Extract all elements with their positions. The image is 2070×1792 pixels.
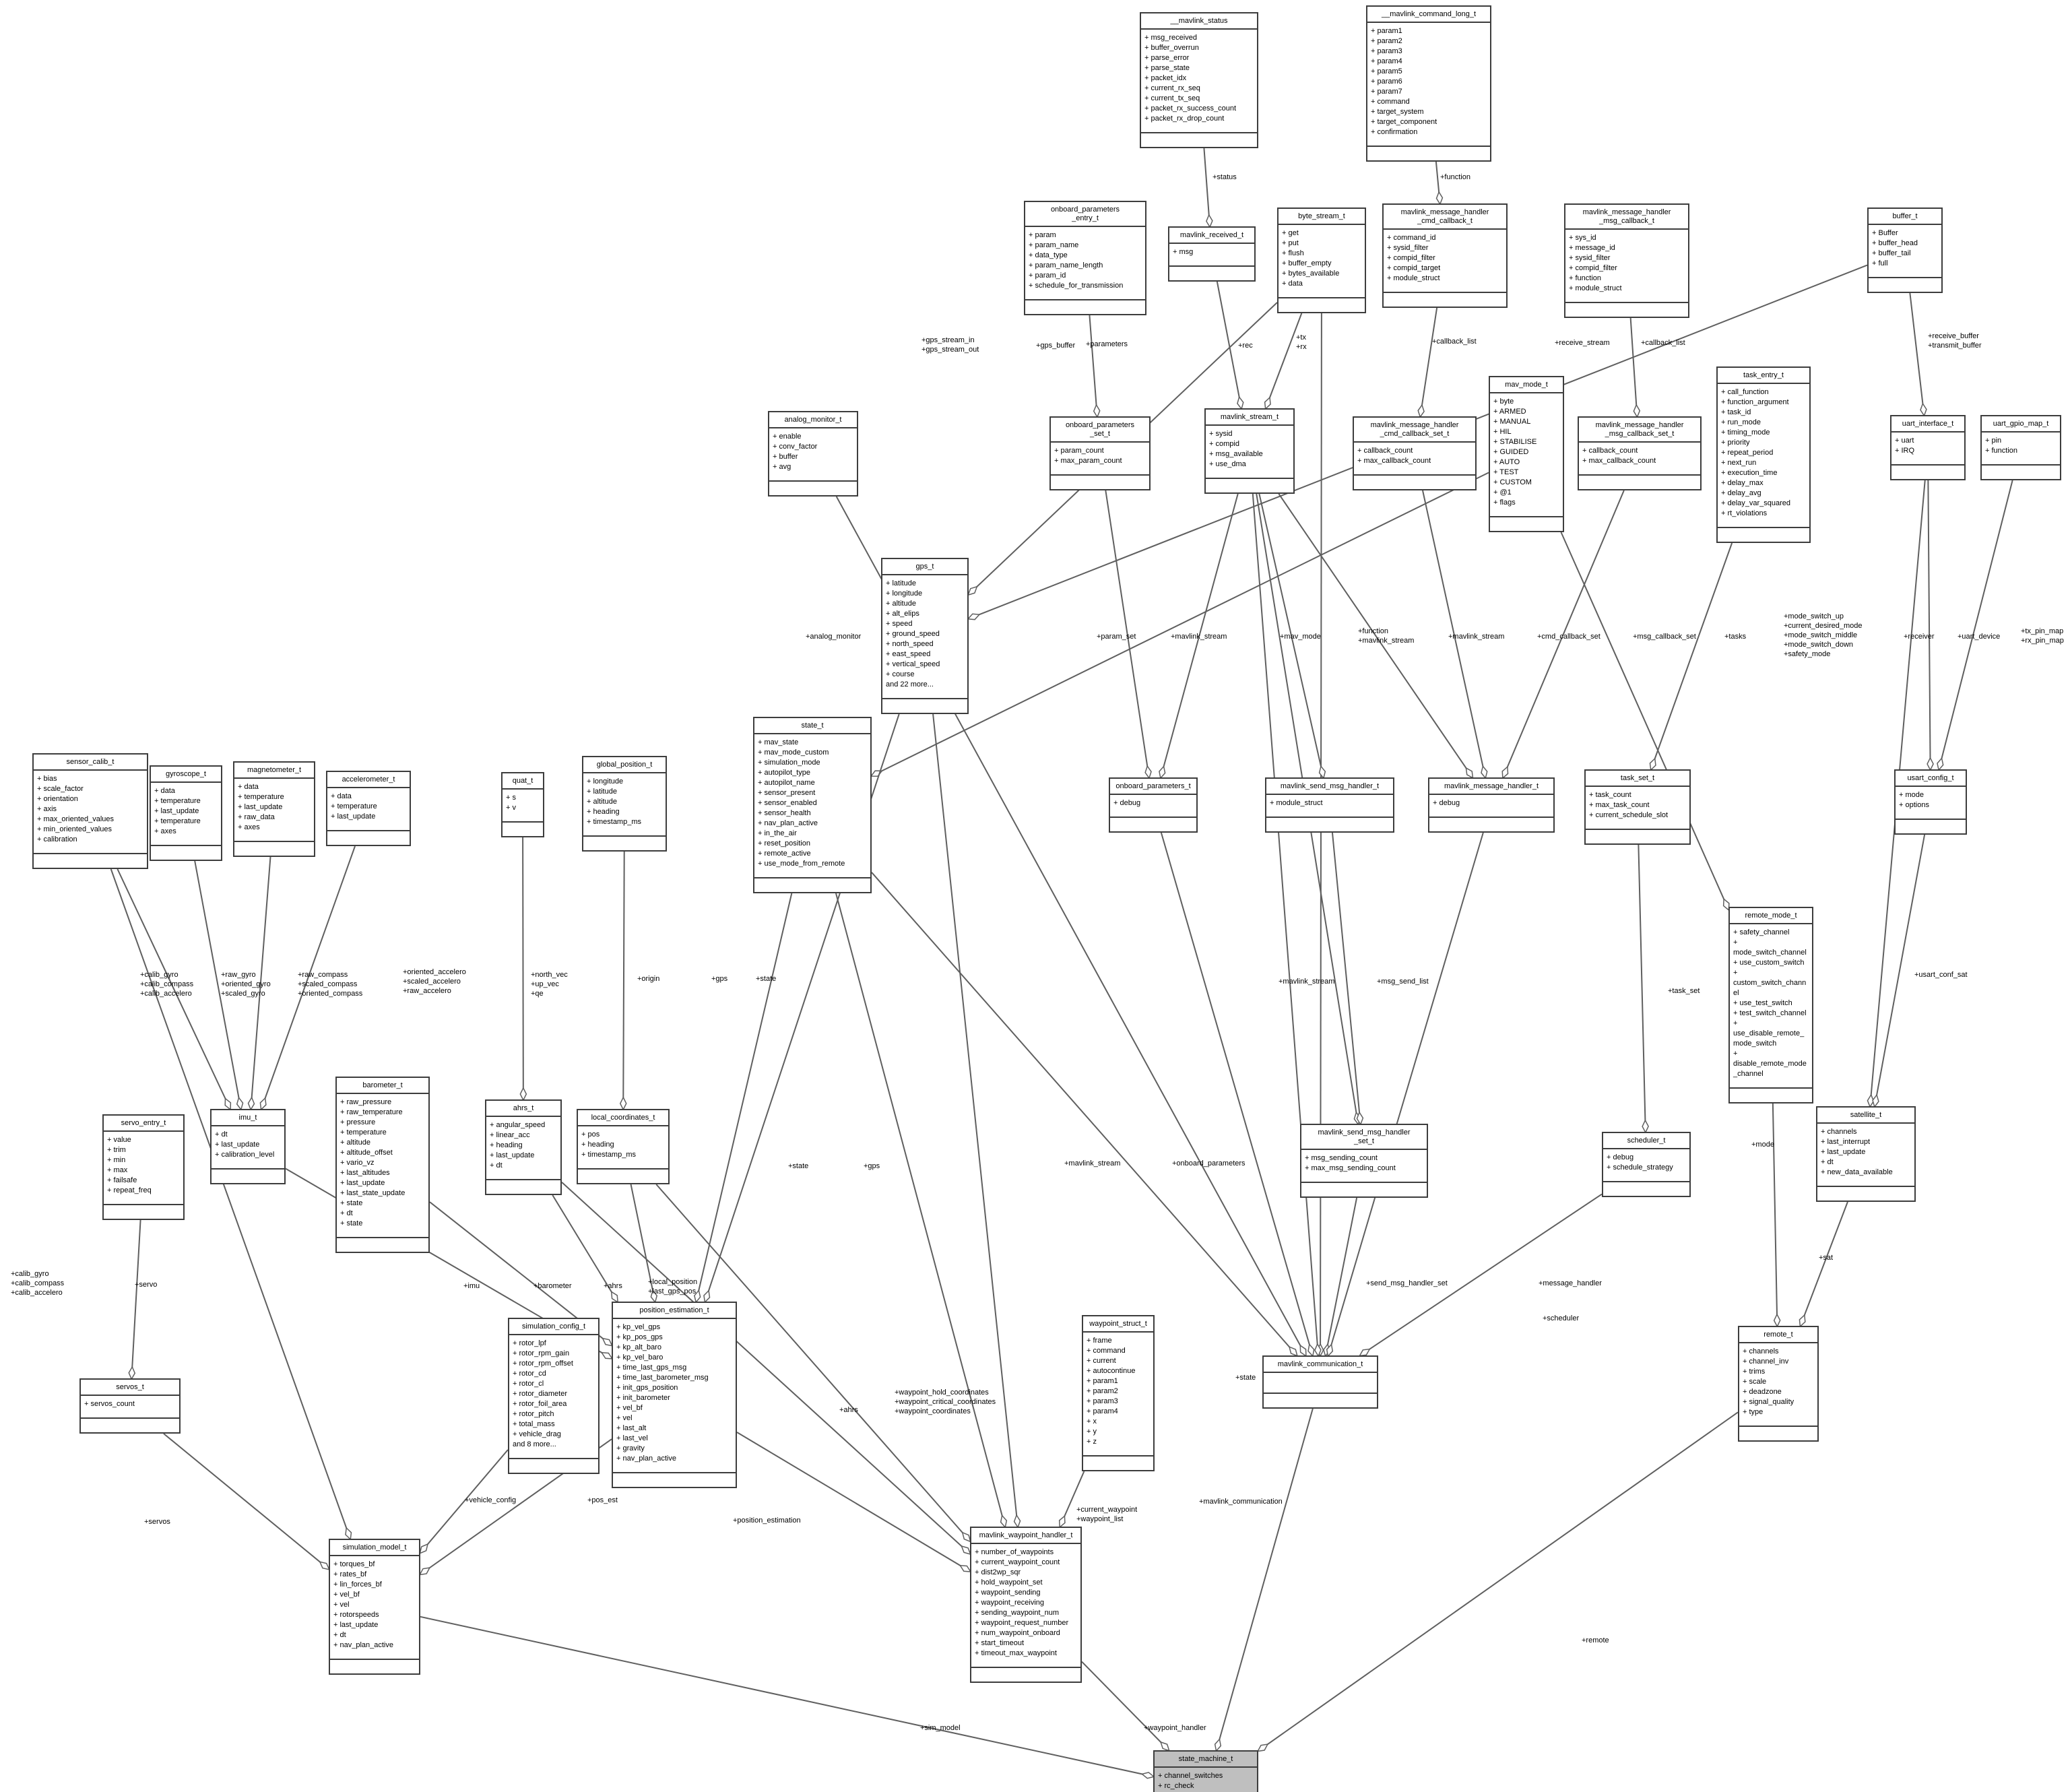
edge-label: +gps bbox=[711, 974, 727, 984]
class-attribute: + timeout_max_waypoint bbox=[975, 1649, 1078, 1659]
class-attribute: + rc_check bbox=[1158, 1781, 1255, 1791]
class-methods-empty bbox=[1603, 1181, 1689, 1196]
class-attribute: + task_count bbox=[1589, 790, 1687, 800]
class-attribute: + pos bbox=[581, 1130, 666, 1140]
class-methods-empty bbox=[882, 698, 967, 713]
class-title: remote_mode_t bbox=[1730, 908, 1812, 924]
class-attributes: + callback_count+ max_callback_count bbox=[1354, 443, 1475, 474]
edge-label: +position_estimation bbox=[733, 1516, 801, 1525]
association-edge-send_msg_handler-send_msg_handler_set bbox=[1332, 833, 1361, 1124]
class-node-global_position: global_position_t+ longitude+ latitude+ … bbox=[582, 756, 667, 852]
class-methods-empty bbox=[337, 1237, 428, 1252]
class-attribute: + call_function bbox=[1721, 387, 1807, 397]
class-attribute: + vario_vz bbox=[340, 1158, 426, 1168]
class-attribute: + next_run bbox=[1721, 458, 1807, 468]
class-attribute: + param7 bbox=[1371, 87, 1488, 97]
class-attribute: + linear_acc bbox=[490, 1130, 558, 1141]
class-attribute: + z bbox=[1087, 1437, 1151, 1447]
class-attribute: + compid_filter bbox=[1569, 263, 1686, 274]
class-methods-empty bbox=[1110, 817, 1196, 831]
class-attribute: + use_dma bbox=[1209, 459, 1291, 470]
class-node-send_msg_handler_set: mavlink_send_msg_handler _set_t+ msg_sen… bbox=[1300, 1124, 1428, 1198]
class-attribute: + s bbox=[506, 793, 541, 803]
class-attribute: + sysid_filter bbox=[1387, 243, 1504, 253]
class-title: __mavlink_status bbox=[1141, 13, 1257, 30]
class-attribute: + repeat_period bbox=[1721, 448, 1807, 458]
class-node-buffer: buffer_t+ Buffer+ buffer_head+ buffer_ta… bbox=[1867, 207, 1943, 293]
class-attribute: + run_mode bbox=[1721, 418, 1807, 428]
class-methods-empty bbox=[971, 1667, 1080, 1682]
class-attribute: + num_waypoint_onboard bbox=[975, 1628, 1078, 1638]
class-attribute: + rates_bf bbox=[333, 1570, 417, 1580]
class-node-remote_mode: remote_mode_t+ safety_channel+ mode_swit… bbox=[1728, 907, 1813, 1103]
class-attribute: + mode_switch_channel bbox=[1733, 938, 1810, 958]
class-attributes: + uart+ IRQ bbox=[1891, 433, 1964, 464]
class-attributes: + channels+ channel_inv+ trims+ scale+ d… bbox=[1739, 1343, 1817, 1426]
edge-label: +remote bbox=[1582, 1636, 1609, 1645]
class-attribute: + axes bbox=[154, 827, 219, 837]
class-title: onboard_parameters _entry_t bbox=[1025, 202, 1145, 227]
class-node-satellite: satellite_t+ channels+ last_interrupt+ l… bbox=[1816, 1106, 1916, 1202]
class-attribute: + last_update bbox=[215, 1140, 282, 1150]
edge-label: +servo bbox=[135, 1280, 157, 1289]
class-attribute: + last_interrupt bbox=[1821, 1137, 1912, 1147]
class-title: buffer_t bbox=[1869, 209, 1941, 225]
class-methods-empty bbox=[1025, 299, 1145, 314]
class-attributes: + channels+ last_interrupt+ last_update+… bbox=[1817, 1124, 1914, 1186]
edge-label: +barometer bbox=[533, 1281, 572, 1291]
class-title: local_coordinates_t bbox=[578, 1110, 668, 1126]
class-attribute: + TEST bbox=[1493, 468, 1561, 478]
association-edge-buffer-uart_interface bbox=[1910, 293, 1924, 415]
class-attribute: + packet_idx bbox=[1144, 73, 1255, 84]
class-attributes: + param+ param_name+ data_type+ param_na… bbox=[1025, 227, 1145, 299]
class-title: mavlink_communication_t bbox=[1264, 1357, 1377, 1373]
class-attributes: + kp_vel_gps+ kp_pos_gps+ kp_alt_baro+ k… bbox=[613, 1319, 736, 1472]
association-edge-mavlink_status-mavlink_received bbox=[1204, 148, 1210, 226]
class-attribute: + msg_sending_count bbox=[1305, 1153, 1425, 1163]
class-attribute: + rotor_cl bbox=[513, 1379, 596, 1389]
class-attribute: + command bbox=[1087, 1346, 1151, 1356]
class-methods-empty bbox=[1169, 265, 1254, 280]
edge-label: +analog_monitor bbox=[806, 632, 861, 641]
class-attribute: + GUIDED bbox=[1493, 447, 1561, 457]
class-node-gps: gps_t+ latitude+ longitude+ altitude+ al… bbox=[881, 558, 969, 714]
class-attribute: + reset_position bbox=[758, 839, 868, 849]
class-attribute: + dt bbox=[1821, 1157, 1912, 1167]
class-attribute: + torques_bf bbox=[333, 1560, 417, 1570]
class-node-local_coordinates: local_coordinates_t+ pos+ heading+ times… bbox=[577, 1109, 670, 1184]
class-attribute: + servos_count bbox=[84, 1399, 177, 1409]
class-title: usart_config_t bbox=[1896, 771, 1966, 787]
class-attributes: + latitude+ longitude+ altitude+ alt_eli… bbox=[882, 575, 967, 698]
class-node-analog_monitor: analog_monitor_t+ enable+ conv_factor+ b… bbox=[768, 411, 858, 497]
class-attribute: + mav_state bbox=[758, 738, 868, 748]
edge-label: +tx_pin_map +rx_pin_map bbox=[2021, 627, 2064, 645]
class-attribute: + timestamp_ms bbox=[581, 1150, 666, 1160]
edge-label: +oriented_accelero +scaled_accelero +raw… bbox=[403, 967, 466, 996]
edge-label: +mode bbox=[1751, 1140, 1774, 1149]
class-attribute: + param3 bbox=[1087, 1397, 1151, 1407]
class-title: onboard_parameters_t bbox=[1110, 779, 1196, 795]
class-attribute: + current bbox=[1087, 1356, 1151, 1366]
class-methods-empty bbox=[34, 853, 147, 868]
class-attribute: + last_update bbox=[340, 1178, 426, 1188]
class-attribute: + max_oriented_values bbox=[37, 814, 145, 825]
class-attribute: + schedule_for_transmission bbox=[1029, 281, 1143, 291]
class-attribute: + buffer_overrun bbox=[1144, 43, 1255, 53]
edge-label: +servos bbox=[144, 1517, 170, 1527]
edge-label: +gps_buffer bbox=[1036, 341, 1075, 350]
class-attribute: + vertical_speed bbox=[886, 660, 965, 670]
class-attribute: + last_update bbox=[490, 1151, 558, 1161]
class-attribute: + north_speed bbox=[886, 639, 965, 649]
class-attribute: + compid_filter bbox=[1387, 253, 1504, 263]
class-attribute: + temperature bbox=[238, 792, 312, 802]
edge-label: +mavlink_communication bbox=[1199, 1497, 1283, 1506]
class-attribute: + raw_data bbox=[238, 812, 312, 823]
edge-label: +raw_compass +scaled_compass +oriented_c… bbox=[298, 970, 362, 998]
class-node-position_estimation: position_estimation_t+ kp_vel_gps+ kp_po… bbox=[612, 1302, 737, 1488]
class-attribute: + calibration_level bbox=[215, 1150, 282, 1160]
edge-label: +pos_est bbox=[587, 1496, 618, 1505]
class-node-imu: imu_t+ dt+ last_update+ calibration_leve… bbox=[210, 1109, 286, 1184]
class-attributes: + pos+ heading+ timestamp_ms bbox=[578, 1126, 668, 1168]
class-attribute: + trim bbox=[107, 1145, 181, 1155]
class-attribute: + channel_switches bbox=[1158, 1771, 1255, 1781]
class-attribute: + test_switch_channel bbox=[1733, 1009, 1810, 1019]
association-edge-state-position_estimation bbox=[696, 893, 791, 1302]
class-attribute: + sys_id bbox=[1569, 233, 1686, 243]
class-attribute: + max_task_count bbox=[1589, 800, 1687, 810]
class-attribute: + use_test_switch bbox=[1733, 998, 1810, 1009]
class-attribute: + ARMED bbox=[1493, 407, 1561, 417]
class-attribute: + channel_inv bbox=[1743, 1357, 1815, 1367]
class-attribute: + module_struct bbox=[1569, 284, 1686, 294]
association-edge-onboard_parameters_entry-onboard_parameters_set bbox=[1089, 315, 1097, 416]
class-attribute: + last_state_update bbox=[340, 1188, 426, 1198]
class-attribute: + use_disable_remote_mode_switch bbox=[1733, 1019, 1810, 1049]
association-edge-state-mavlink_communication bbox=[872, 872, 1297, 1355]
class-attribute: + rotor_foil_area bbox=[513, 1399, 596, 1409]
class-node-simulation_config: simulation_config_t+ rotor_lpf+ rotor_rp… bbox=[508, 1318, 600, 1474]
class-attribute: + rotor_cd bbox=[513, 1369, 596, 1379]
edge-label: +status bbox=[1212, 172, 1237, 182]
class-attribute: + avg bbox=[773, 462, 855, 472]
class-methods-empty bbox=[151, 845, 221, 860]
class-attribute: + start_timeout bbox=[975, 1638, 1078, 1649]
class-attribute: + heading bbox=[581, 1140, 666, 1150]
class-attributes: + param1+ param2+ param3+ param4+ param5… bbox=[1367, 23, 1490, 146]
class-attribute: + type bbox=[1743, 1407, 1815, 1417]
class-attributes: + s+ v bbox=[503, 790, 543, 821]
class-attribute: + altitude bbox=[886, 599, 965, 609]
class-node-mav_mode: mav_mode_t+ byte+ ARMED+ MANUAL+ HIL+ ST… bbox=[1489, 376, 1564, 532]
class-attribute: + options bbox=[1899, 800, 1964, 810]
class-attributes: + value+ trim+ min+ max+ failsafe+ repea… bbox=[104, 1132, 183, 1204]
class-attribute: + waypoint_request_number bbox=[975, 1618, 1078, 1628]
class-attributes: + task_count+ max_task_count+ current_sc… bbox=[1586, 787, 1689, 829]
association-edge-message_handler-mavlink_communication bbox=[1328, 833, 1483, 1355]
class-title: mavlink_message_handler _msg_callback_se… bbox=[1579, 418, 1700, 443]
class-attribute: + scale bbox=[1743, 1377, 1815, 1387]
class-attribute: + state bbox=[340, 1219, 426, 1229]
association-edge-mavlink_command_long-mmh_cmd_callback bbox=[1436, 162, 1440, 203]
class-title: task_set_t bbox=[1586, 771, 1689, 787]
class-attribute: + state bbox=[340, 1198, 426, 1209]
class-attribute: + CUSTOM bbox=[1493, 478, 1561, 488]
edge-label: +callback_list bbox=[1432, 337, 1477, 346]
class-methods-empty bbox=[613, 1472, 736, 1487]
class-attribute: + gravity bbox=[616, 1444, 734, 1454]
class-attribute: + bytes_available bbox=[1282, 269, 1363, 279]
class-attribute: + kp_alt_baro bbox=[616, 1343, 734, 1353]
class-attribute: + scale_factor bbox=[37, 784, 145, 794]
class-attribute: + bias bbox=[37, 774, 145, 784]
class-attribute: + parse_error bbox=[1144, 53, 1255, 63]
class-attribute: + rotor_rpm_gain bbox=[513, 1349, 596, 1359]
class-attribute: + put bbox=[1282, 238, 1363, 249]
class-title: remote_t bbox=[1739, 1327, 1817, 1343]
class-attribute: + priority bbox=[1721, 438, 1807, 448]
class-attribute: + dt bbox=[333, 1630, 417, 1640]
association-edge-satellite-remote bbox=[1801, 1202, 1848, 1326]
association-edge-onboard_parameters-mavlink_communication bbox=[1161, 833, 1313, 1355]
class-attribute: + delay_max bbox=[1721, 478, 1807, 488]
class-node-magnetometer: magnetometer_t+ data+ temperature+ last_… bbox=[233, 761, 315, 857]
class-attributes-more-note: and 8 more... bbox=[513, 1440, 596, 1450]
class-title: mavlink_send_msg_handler_t bbox=[1266, 779, 1393, 795]
class-methods-empty bbox=[212, 1168, 284, 1183]
class-attribute: + delay_var_squared bbox=[1721, 499, 1807, 509]
class-attribute: + max_param_count bbox=[1054, 456, 1147, 466]
class-attributes: + msg_received+ buffer_overrun+ parse_er… bbox=[1141, 30, 1257, 132]
class-attribute: + east_speed bbox=[886, 649, 965, 660]
class-attribute: + param6 bbox=[1371, 77, 1488, 87]
class-node-task_set: task_set_t+ task_count+ max_task_count+ … bbox=[1584, 769, 1691, 845]
class-node-quat: quat_t+ s+ v bbox=[501, 772, 544, 837]
class-methods-empty bbox=[327, 830, 410, 845]
class-title: onboard_parameters _set_t bbox=[1051, 418, 1149, 443]
class-attribute: + last_update bbox=[333, 1620, 417, 1630]
class-attribute: + deadzone bbox=[1743, 1387, 1815, 1397]
edge-label: +mavlink_stream bbox=[1064, 1159, 1120, 1168]
edge-label: +vehicle_config bbox=[465, 1496, 516, 1505]
class-attribute: + channels bbox=[1743, 1347, 1815, 1357]
class-title: mavlink_stream_t bbox=[1206, 410, 1293, 426]
edge-label: +usart_conf_sat bbox=[1914, 970, 1968, 980]
class-title: global_position_t bbox=[583, 757, 666, 773]
class-attribute: + vel_bf bbox=[616, 1403, 734, 1413]
class-attribute: + debug bbox=[1607, 1153, 1687, 1163]
class-attribute: + MANUAL bbox=[1493, 417, 1561, 427]
class-attribute: + custom_switch_channel bbox=[1733, 968, 1810, 998]
class-methods-empty bbox=[81, 1417, 179, 1432]
class-methods-empty bbox=[1141, 132, 1257, 147]
edge-label: +state bbox=[756, 974, 776, 984]
class-attribute: + pin bbox=[1985, 436, 2058, 446]
class-attributes: + number_of_waypoints+ current_waypoint_… bbox=[971, 1544, 1080, 1667]
class-attribute: + time_last_barometer_msg bbox=[616, 1373, 734, 1383]
edge-label: +origin bbox=[637, 974, 659, 984]
class-attribute: + channels bbox=[1821, 1127, 1912, 1137]
class-attributes: + raw_pressure+ raw_temperature+ pressur… bbox=[337, 1094, 428, 1237]
class-attribute: + debug bbox=[1113, 798, 1194, 808]
class-attribute: + heading bbox=[587, 807, 664, 817]
class-attribute: + data bbox=[331, 792, 408, 802]
class-attribute: + longitude bbox=[587, 777, 664, 787]
class-attributes: + mode+ options bbox=[1896, 787, 1966, 819]
class-attribute: + dt bbox=[490, 1161, 558, 1171]
class-attribute: + use_custom_switch bbox=[1733, 958, 1810, 968]
class-attribute: + altitude_offset bbox=[340, 1148, 426, 1158]
class-methods-empty bbox=[1869, 277, 1941, 292]
class-node-state: state_t+ mav_state+ mav_mode_custom+ sim… bbox=[753, 717, 872, 893]
class-attribute: + param_name bbox=[1029, 241, 1143, 251]
class-attribute: + rt_violations bbox=[1721, 509, 1807, 519]
class-attribute: + Buffer bbox=[1872, 228, 1939, 238]
class-methods-empty bbox=[1586, 829, 1689, 843]
class-attribute: + param2 bbox=[1087, 1386, 1151, 1397]
class-title: ahrs_t bbox=[486, 1101, 560, 1117]
class-attribute: + vel bbox=[333, 1600, 417, 1610]
association-edge-byte_stream-mavlink_stream bbox=[1266, 313, 1301, 408]
class-attributes: + servos_count bbox=[81, 1396, 179, 1417]
class-title: waypoint_struct_t bbox=[1083, 1316, 1153, 1333]
class-methods-empty bbox=[234, 841, 314, 856]
class-title: satellite_t bbox=[1817, 1108, 1914, 1124]
class-node-mavlink_received: mavlink_received_t+ msg bbox=[1168, 226, 1256, 282]
class-attribute: + data bbox=[238, 782, 312, 792]
class-attribute: + function_argument bbox=[1721, 397, 1807, 408]
class-attribute: + frame bbox=[1087, 1336, 1151, 1346]
class-attribute: + kp_vel_baro bbox=[616, 1353, 734, 1363]
class-methods-empty bbox=[503, 821, 543, 836]
class-attributes: + data+ temperature+ last_update+ temper… bbox=[151, 783, 221, 845]
class-attribute: + command bbox=[1371, 97, 1488, 107]
class-attribute: + buffer_empty bbox=[1282, 259, 1363, 269]
class-attributes: + call_function+ function_argument+ task… bbox=[1718, 384, 1809, 527]
class-attribute: + vehicle_drag bbox=[513, 1430, 596, 1440]
class-title: state_machine_t bbox=[1155, 1752, 1257, 1768]
class-methods-empty bbox=[1384, 292, 1506, 307]
class-methods-empty bbox=[1301, 1182, 1427, 1196]
class-attribute: + total_mass bbox=[513, 1419, 596, 1430]
edge-label: +msg_callback_set bbox=[1633, 632, 1696, 641]
class-attribute: + rotor_pitch bbox=[513, 1409, 596, 1419]
class-attributes: + dt+ last_update+ calibration_level bbox=[212, 1126, 284, 1168]
class-title: sensor_calib_t bbox=[34, 755, 147, 771]
class-attribute: + failsafe bbox=[107, 1176, 181, 1186]
class-attribute: + last_update bbox=[238, 802, 312, 812]
edge-label: +parameters bbox=[1086, 340, 1128, 349]
class-attributes: + msg bbox=[1169, 244, 1254, 265]
class-attribute: + current_waypoint_count bbox=[975, 1558, 1078, 1568]
class-attribute: + safety_channel bbox=[1733, 928, 1810, 938]
class-attribute: + course bbox=[886, 670, 965, 680]
class-attribute: + v bbox=[506, 803, 541, 813]
edge-label: +gps_stream_in +gps_stream_out bbox=[921, 335, 979, 354]
edge-label: +onboard_parameters bbox=[1172, 1159, 1246, 1168]
class-attribute: + function bbox=[1569, 274, 1686, 284]
class-attribute: + disable_remote_mode_channel bbox=[1733, 1049, 1810, 1079]
edge-label: +sim_model bbox=[920, 1723, 961, 1733]
class-attribute: + param1 bbox=[1371, 26, 1488, 36]
association-edge-task_entry-task_set bbox=[1651, 543, 1732, 769]
class-methods-empty bbox=[104, 1204, 183, 1219]
class-attributes: + bias+ scale_factor+ orientation+ axis+… bbox=[34, 771, 147, 853]
class-attribute: + rotor_rpm_offset bbox=[513, 1359, 596, 1369]
class-title: magnetometer_t bbox=[234, 763, 314, 779]
class-attribute: + last_altitudes bbox=[340, 1168, 426, 1178]
class-attribute: + init_barometer bbox=[616, 1393, 734, 1403]
class-title: task_entry_t bbox=[1718, 368, 1809, 384]
class-node-waypoint_struct: waypoint_struct_t+ frame+ command+ curre… bbox=[1082, 1315, 1155, 1471]
class-attributes: + enable+ conv_factor+ buffer+ avg bbox=[769, 428, 857, 480]
class-node-uart_interface: uart_interface_t+ uart+ IRQ bbox=[1890, 415, 1966, 480]
association-edge-waypoint_handler-state_machine bbox=[1082, 1662, 1169, 1750]
edge-label: +raw_gyro +oriented_gyro +scaled_gyro bbox=[221, 970, 271, 998]
class-attributes: + mav_state+ mav_mode_custom+ simulation… bbox=[754, 734, 870, 877]
class-methods-empty bbox=[583, 835, 666, 850]
association-edge-uart_gpio_map-usart_config bbox=[1939, 480, 2012, 769]
class-attributes: + sysid+ compid+ msg_available+ use_dma bbox=[1206, 426, 1293, 478]
class-attribute: + value bbox=[107, 1135, 181, 1145]
class-attributes: + module_struct bbox=[1266, 795, 1393, 817]
class-title: __mavlink_command_long_t bbox=[1367, 7, 1490, 23]
class-node-mmh_msg_callback: mavlink_message_handler _msg_callback_t+… bbox=[1564, 203, 1689, 318]
class-title: mavlink_send_msg_handler _set_t bbox=[1301, 1125, 1427, 1150]
class-node-ahrs: ahrs_t+ angular_speed+ linear_acc+ headi… bbox=[485, 1099, 562, 1195]
class-title: barometer_t bbox=[337, 1078, 428, 1094]
class-attribute: + waypoint_receiving bbox=[975, 1598, 1078, 1608]
class-attribute: + buffer_tail bbox=[1872, 249, 1939, 259]
class-attribute: + rotor_diameter bbox=[513, 1389, 596, 1399]
class-attribute: + heading bbox=[490, 1141, 558, 1151]
class-attribute: + kp_vel_gps bbox=[616, 1322, 734, 1333]
class-methods-empty bbox=[1266, 817, 1393, 831]
class-attribute: + task_id bbox=[1721, 408, 1807, 418]
class-attribute: + last_vel bbox=[616, 1434, 734, 1444]
class-attribute: + max_callback_count bbox=[1582, 456, 1698, 466]
class-attribute: + vel bbox=[616, 1413, 734, 1423]
association-edge-quat-ahrs bbox=[523, 837, 523, 1099]
class-node-onboard_parameters_set: onboard_parameters _set_t+ param_count+ … bbox=[1049, 416, 1151, 490]
class-title: servos_t bbox=[81, 1380, 179, 1396]
association-edge-mmh_msg_callback-mmh_msg_callback_set bbox=[1631, 318, 1638, 416]
class-attribute: + waypoint_sending bbox=[975, 1588, 1078, 1598]
association-edge-mmh_cmd_callback-mmh_cmd_callback_set bbox=[1420, 308, 1437, 416]
class-methods-empty bbox=[1264, 1393, 1377, 1407]
class-attribute: + nav_plan_active bbox=[758, 819, 868, 829]
edge-label: +param_set bbox=[1097, 632, 1136, 641]
class-attribute: + packet_rx_success_count bbox=[1144, 104, 1255, 114]
class-attribute: + sysid_filter bbox=[1569, 253, 1686, 263]
class-attribute: + raw_temperature bbox=[340, 1108, 426, 1118]
class-methods-empty bbox=[769, 480, 857, 495]
class-attribute: + angular_speed bbox=[490, 1120, 558, 1130]
class-attribute: + last_update bbox=[331, 812, 408, 822]
class-attribute: + lin_forces_bf bbox=[333, 1580, 417, 1590]
class-methods-empty bbox=[1206, 478, 1293, 492]
class-attribute: + param4 bbox=[1087, 1407, 1151, 1417]
class-methods-empty bbox=[1490, 516, 1563, 531]
class-node-barometer: barometer_t+ raw_pressure+ raw_temperatu… bbox=[335, 1077, 430, 1253]
class-attribute: + data bbox=[154, 786, 219, 796]
class-attribute: + @1 bbox=[1493, 488, 1561, 498]
class-attribute: + time_last_gps_msg bbox=[616, 1363, 734, 1373]
class-attribute: + full bbox=[1872, 259, 1939, 269]
